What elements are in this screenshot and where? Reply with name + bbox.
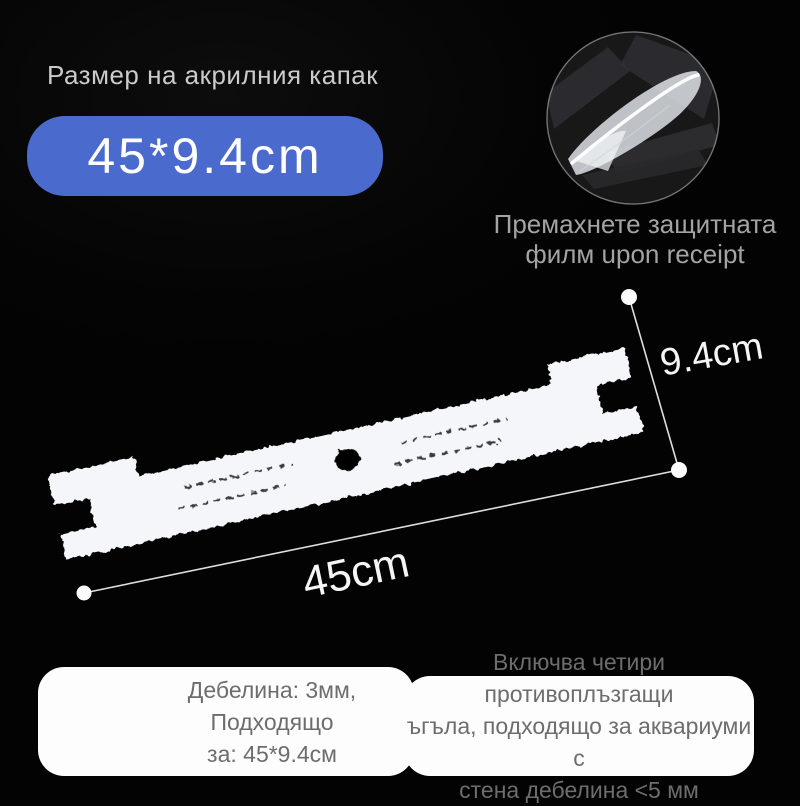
dimension-dot — [77, 586, 92, 601]
size-badge: 45*9.4cm — [27, 116, 383, 196]
spec-card-corners: Включва четири противоплъзгащи ъгъла, по… — [404, 676, 754, 776]
spec-card-thickness: Дебелина: 3мм, Подходящо за: 45*9.4см — [38, 667, 414, 776]
width-dimension-label: 45cm — [298, 537, 414, 608]
thickness-note: Дебелина: 3мм, Подходящо за: 45*9.4см — [130, 674, 414, 770]
size-badge-label: 45*9.4cm — [87, 127, 322, 185]
product-image-canvas: Размер на акрилния капак 45*9.4cm — [0, 0, 800, 800]
inset-caption: Премахнете защитната филм upon receipt — [470, 209, 800, 269]
corners-note: Включва четири противоплъзгащи ъгъла, по… — [404, 646, 754, 806]
lid-panel — [29, 332, 659, 576]
dimension-dot — [671, 462, 687, 478]
dimension-dot — [621, 289, 637, 305]
film-photo-circle — [546, 31, 720, 205]
film-photo-illustration — [546, 31, 720, 205]
height-dimension-label: 9.4cm — [657, 325, 766, 385]
size-title: Размер на акрилния капак — [47, 60, 407, 91]
